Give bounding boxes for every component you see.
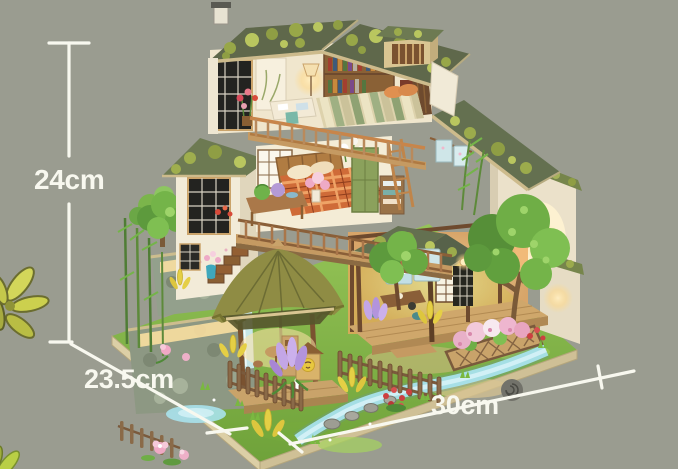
width-dimension-label: 30cm [431, 392, 497, 419]
product-photo: 24cm 23.5cm 30cm [0, 0, 678, 469]
depth-dimension-label: 23.5cm [84, 366, 166, 393]
miniature-dollhouse-illustration [0, 0, 678, 469]
pavilion-post [358, 256, 360, 332]
chimney [211, 2, 231, 24]
hanging-cloth [436, 140, 452, 162]
height-dimension-label: 24cm [34, 166, 98, 194]
purple-ball [271, 183, 285, 197]
